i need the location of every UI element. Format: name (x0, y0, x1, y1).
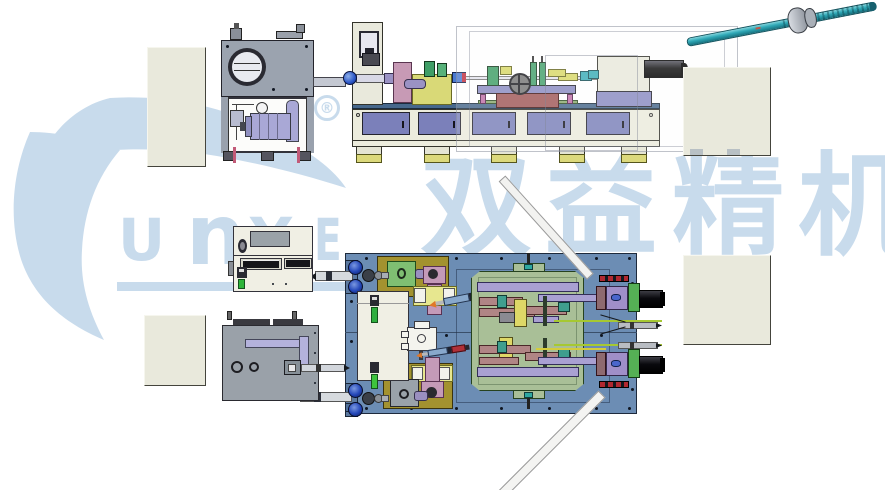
probe-band (326, 271, 332, 281)
white-clamp-block (412, 367, 423, 380)
motor-rib (259, 113, 260, 140)
dark-post (543, 338, 547, 368)
side-panel-top-right (683, 67, 771, 156)
bracket-prong (401, 343, 409, 350)
foot-block (356, 146, 382, 155)
bolt-dot (455, 407, 458, 410)
slot-opening (243, 260, 279, 268)
yellow-actuator (499, 337, 513, 365)
white-bracket-fixture (407, 327, 437, 351)
gray-block (499, 312, 515, 323)
panel-dot (272, 283, 274, 285)
flange-disc-large (786, 6, 811, 35)
slot-frame (240, 258, 282, 270)
arm-knob (426, 387, 437, 398)
foot-pad-yellow (491, 154, 517, 163)
bolt-dot (445, 334, 448, 337)
bolt-dot (631, 320, 634, 323)
probe-body (443, 293, 470, 306)
blue-pill (611, 294, 621, 301)
bolt-dot (631, 355, 634, 358)
sensor-rod (618, 322, 658, 329)
watermark: U n Y E ® 双 益 精 机 (0, 0, 885, 490)
yellow-actuator (514, 299, 527, 327)
olive-fixture-block-top (377, 256, 449, 297)
foot (298, 151, 311, 161)
yellow-clamp-plate (411, 365, 453, 382)
rose-slide-block (525, 306, 567, 315)
pipe-fitting (296, 24, 305, 33)
lavender-slide (533, 316, 559, 323)
connector-block (284, 360, 301, 375)
spindle-bracket (345, 260, 358, 294)
chuck-adapter (381, 395, 389, 402)
probe-ring (447, 346, 452, 354)
rose-slide-block (479, 357, 519, 365)
foot-pad-yellow (621, 154, 647, 163)
knob-ring (231, 361, 243, 373)
watermark-letter-u: U (118, 211, 165, 269)
green-fixture (539, 62, 546, 86)
watermark-underline (117, 282, 345, 291)
tailstock-housing (597, 56, 650, 94)
table-leg (480, 94, 486, 104)
green-clamp (424, 61, 435, 77)
plate-center-seam (345, 332, 637, 333)
sight-glass-line (234, 63, 260, 64)
spindle-motor-blue (348, 260, 363, 275)
vent-hole (649, 113, 653, 117)
rod-band (630, 322, 634, 329)
red-dash-bar (599, 381, 629, 388)
valve-block (230, 110, 244, 127)
bolt-dot (350, 300, 353, 303)
guide-wire (600, 326, 625, 334)
probe-band (314, 392, 321, 402)
pink-column (393, 62, 412, 103)
side-panel-middle-right (683, 255, 771, 345)
wheel-spoke (518, 75, 520, 93)
bolt-dot (500, 407, 503, 410)
measuring-probe-lower (415, 342, 474, 360)
chuck-disc (362, 392, 375, 405)
top-foot-tab (273, 319, 303, 326)
foot-pad-yellow (356, 154, 382, 163)
registered-trademark-symbol: ® (314, 95, 340, 121)
white-clamp-block (414, 288, 426, 303)
center-base-inner-line (478, 277, 577, 385)
probe-tip-orange (428, 301, 436, 309)
clamp-bore-ring (399, 389, 409, 399)
green-indicator (238, 279, 245, 289)
motor-rib (268, 113, 269, 140)
green-clamp-plate (387, 261, 416, 287)
bolt-dot (455, 257, 458, 260)
sight-glass-line (234, 70, 260, 71)
chuck-collar (374, 394, 383, 403)
clamp-bore-ring (397, 268, 406, 279)
oval-button (238, 239, 247, 253)
sight-glass (232, 52, 262, 82)
white-clamp-block (439, 367, 450, 380)
motor-rib (277, 113, 278, 140)
bracket-prong (401, 331, 409, 338)
bolt-dot (410, 407, 413, 410)
switch-icon (237, 267, 247, 278)
bed-top-strip (352, 103, 660, 109)
bolt-dot (631, 388, 634, 391)
pump-shaft (240, 122, 245, 131)
spindle-motor-blue (348, 402, 363, 417)
frame-left-post (221, 97, 229, 153)
bed-bottom-rail (352, 140, 660, 147)
pump-motor (250, 113, 291, 140)
bolt-dot (548, 257, 551, 260)
bolt-dot (545, 334, 548, 337)
bolt-dot (410, 257, 413, 260)
bracket-knob (365, 48, 374, 55)
olive-fixture-block-bottom (383, 363, 453, 409)
rose-mount (596, 286, 606, 310)
probe-tip-orange (416, 352, 423, 359)
foot (223, 151, 236, 161)
panel-tab (690, 149, 703, 155)
ghost-enclosure-inner (469, 31, 725, 147)
foot-pad-yellow (559, 154, 585, 163)
shaft-end-tip (869, 1, 878, 11)
rod-band (630, 342, 634, 349)
pink-arm (423, 266, 446, 284)
switch-slot (239, 269, 244, 272)
green-actuator-block (628, 283, 640, 312)
bolt-dot (365, 407, 368, 410)
center-bottom-tab (513, 390, 545, 399)
foot (261, 151, 274, 161)
rose-slide-block (479, 345, 531, 354)
registered-r: ® (320, 99, 335, 117)
s-swoosh-bottom (14, 132, 120, 340)
probe-ring (468, 292, 474, 301)
chuck-disc (362, 269, 375, 282)
air-cylinder (639, 356, 663, 374)
probe-tip (295, 394, 301, 401)
diagonal-beams (0, 0, 885, 490)
ram-tip (681, 63, 688, 75)
laser-line-yellow (536, 348, 606, 350)
white-clamp-block (443, 288, 455, 303)
gauge-unit-box (0, 0, 885, 490)
box-seam (357, 303, 409, 304)
ram-cylinder (644, 60, 684, 78)
green-platform-strip (478, 100, 578, 104)
teal-block (497, 295, 507, 308)
rose-slide-block (479, 308, 535, 317)
probe-shaft (300, 392, 352, 402)
spindle-motor-blue (348, 279, 363, 294)
air-cylinder (639, 290, 663, 308)
bolt-dot (365, 257, 368, 260)
pump-frame (221, 97, 314, 153)
spindle-bracket (345, 383, 358, 417)
cabinet-door (418, 112, 461, 135)
bracket-pin (419, 351, 423, 360)
pump-head (245, 116, 252, 137)
gauge-unit-body (222, 325, 319, 401)
door-handle (563, 121, 565, 128)
bolt-dot (600, 334, 603, 337)
controller-seam (233, 255, 313, 256)
lavender-rail (477, 282, 579, 292)
probe-shaft (435, 300, 444, 305)
probe-shaft (422, 352, 428, 356)
green-fixture (487, 66, 499, 86)
top-foot-tab (233, 319, 270, 326)
controller-body (233, 226, 313, 292)
machine-front-view (0, 0, 885, 490)
watermark-cjk-1: 双 (420, 152, 532, 264)
probe-band (316, 364, 321, 372)
guide-wire (600, 314, 625, 322)
chuck-collar (374, 271, 383, 280)
slot-opening (286, 260, 310, 267)
tailstock-base-purple (596, 91, 652, 107)
fixture-pin (541, 56, 543, 64)
column-window (359, 31, 379, 58)
door-handle (453, 121, 455, 128)
sight-glass-ring (228, 48, 266, 86)
watermark-cjk-4: 机 (798, 151, 885, 263)
oil-tank (221, 40, 314, 97)
knob-ring (249, 362, 259, 372)
plate-edge-tab (345, 403, 359, 412)
probe-tail-red (473, 289, 492, 300)
probe-cap (465, 345, 470, 351)
thread-texture (782, 2, 874, 28)
spindle-motor-blue (348, 383, 363, 398)
panel-tab (727, 149, 740, 155)
workpiece-axis-rod (452, 76, 642, 80)
bed-body (352, 109, 660, 141)
cabinet-door (586, 112, 630, 135)
foot-block (491, 146, 517, 155)
cabinet-door (527, 112, 571, 135)
slot-frame (284, 258, 312, 269)
watermark-letter-e: E (314, 211, 342, 269)
bolt-dot (628, 407, 631, 410)
mount-pin (292, 311, 297, 320)
axis-coupler-blue (452, 72, 466, 83)
machine-top-view (0, 0, 885, 490)
pipe-line (236, 104, 237, 140)
watermark-letter-y: Y (250, 210, 292, 268)
probe-cap (491, 289, 497, 296)
rod-tip (656, 323, 662, 328)
bolt-dot (305, 88, 308, 91)
gray-clamp-plate (390, 379, 419, 407)
pipe-line (232, 104, 254, 105)
green-actuator-block (628, 349, 640, 378)
laser-line-green (554, 344, 662, 346)
cylinder-cap (660, 292, 665, 306)
ballscrew-3d-part (0, 0, 885, 490)
bolt-dot (305, 45, 308, 48)
red-table-box (496, 93, 559, 108)
foot-block (424, 146, 450, 155)
probe-shaft (301, 364, 345, 372)
sunye-s-swoosh-logo (0, 85, 360, 355)
bolt-dot (350, 340, 353, 343)
probe-tip (310, 273, 316, 280)
yellow-clamp (500, 66, 512, 75)
column-bracket (362, 53, 380, 66)
bolt-dot (595, 407, 598, 410)
lavender-rail (477, 367, 579, 377)
hydraulic-power-unit (0, 0, 885, 490)
yellow-clamp-plate (413, 286, 457, 306)
yellow-base-wedge (412, 74, 452, 105)
purple-work-table (477, 85, 576, 94)
chuck-adapter (381, 272, 389, 279)
bolt-dot (631, 282, 634, 285)
bolt-dot (628, 257, 631, 260)
bolt-dot (420, 334, 423, 337)
foot-pad-yellow (424, 154, 450, 163)
ballscrew-shaft (686, 1, 877, 47)
lavender-rail (538, 357, 608, 365)
bolt-dot (500, 257, 503, 260)
switch-icon (370, 362, 379, 373)
ghost-window (545, 55, 638, 151)
teal-coupler (588, 70, 599, 79)
blue-ball-knob (343, 71, 357, 85)
measuring-probe-upper (428, 285, 506, 310)
red-dash-bar (599, 275, 629, 282)
green-fixture (530, 62, 537, 86)
bracket-bore (417, 334, 426, 343)
frame-right-post (306, 97, 314, 153)
green-clamp (437, 63, 447, 77)
s-swoosh-top (40, 97, 346, 188)
bolt-dot (272, 88, 275, 91)
yellow-clamp (548, 69, 566, 77)
laser-line-green (554, 320, 662, 322)
breather-stem (234, 23, 239, 29)
purple-cylinder (415, 269, 429, 279)
dark-post (543, 296, 547, 326)
center-top-tab (513, 263, 545, 272)
probe-tail-red (451, 344, 466, 353)
bolt-dot (595, 257, 598, 260)
vent-hole (356, 113, 360, 117)
green-indicator (371, 307, 378, 323)
display-screen (250, 231, 290, 247)
center-fixture-base-green (471, 271, 584, 391)
axis-yellow-segment (558, 73, 578, 81)
axis-red-band (462, 73, 466, 82)
pressure-gauge (256, 102, 268, 114)
plate-control-box (357, 291, 409, 381)
side-panel-top-left (147, 47, 206, 167)
teal-nub (524, 264, 533, 270)
purple-cylinder (404, 79, 426, 89)
outlet-pipe (313, 77, 346, 87)
teal-block (558, 348, 570, 358)
guide-beam-lower (498, 390, 605, 490)
leveling-pin (297, 147, 300, 163)
sensor-rod (618, 342, 658, 349)
center-pin (527, 398, 530, 409)
red-mark (755, 27, 760, 30)
lavender-slot-vertical (299, 336, 309, 372)
controller-box (0, 0, 885, 490)
breather-cap (230, 28, 242, 40)
left-slide-rod (356, 74, 386, 83)
cabinet-door (362, 112, 410, 135)
leveling-pin (233, 147, 236, 163)
fixture-pin (532, 56, 534, 64)
accumulator-tank (286, 100, 299, 142)
purple-actuator-block (606, 352, 628, 376)
door-handle (508, 121, 510, 128)
green-indicator (371, 374, 378, 389)
purple-actuator-block (606, 286, 628, 310)
rose-slide-block (479, 297, 523, 306)
center-pin (527, 253, 530, 264)
elbow-pipe (276, 31, 303, 39)
pink-arm (421, 381, 444, 398)
connector-port (288, 364, 296, 372)
teal-block (558, 302, 570, 312)
bracket-tab (414, 321, 430, 329)
bolt-dot (314, 382, 316, 384)
mount-pin (227, 311, 232, 320)
wheel-spoke (511, 83, 529, 85)
watermark-cjk-3: 精 (672, 150, 784, 262)
rod-tip (656, 343, 662, 348)
bolt-dot (314, 352, 316, 354)
machine-layout-drawing: U n Y E ® 双 益 精 机 (0, 0, 885, 490)
side-panels (0, 0, 885, 490)
lavender-slot-bar (245, 339, 303, 348)
axis-teal-coupler (580, 71, 592, 81)
teal-block (497, 341, 507, 353)
bolt-dot (548, 407, 551, 410)
teal-nub (524, 392, 533, 398)
panel-dot (285, 283, 287, 285)
switch-slot (372, 297, 377, 300)
arm-knob (428, 269, 438, 279)
bolt-dot (226, 45, 229, 48)
rod-fitting (384, 73, 396, 84)
ghost-enclosure-outer (456, 26, 738, 152)
bolt-dot (314, 332, 316, 334)
base-plate (345, 253, 637, 414)
pink-arm-vertical (425, 357, 440, 384)
chuck-handwheel (509, 73, 531, 95)
side-handle (228, 261, 234, 276)
probe-body (427, 347, 448, 357)
probe-shaft (315, 271, 353, 281)
watermark-cjk-2: 益 (545, 150, 657, 262)
plate-scribe-line (456, 269, 610, 403)
cylinder-cap (660, 358, 665, 372)
blue-pill (611, 360, 621, 367)
guide-beam-upper (499, 175, 594, 279)
foot-block (559, 146, 585, 155)
left-control-column (352, 22, 383, 105)
pink-arm-vertical (427, 284, 442, 315)
lavender-rail (538, 294, 608, 302)
